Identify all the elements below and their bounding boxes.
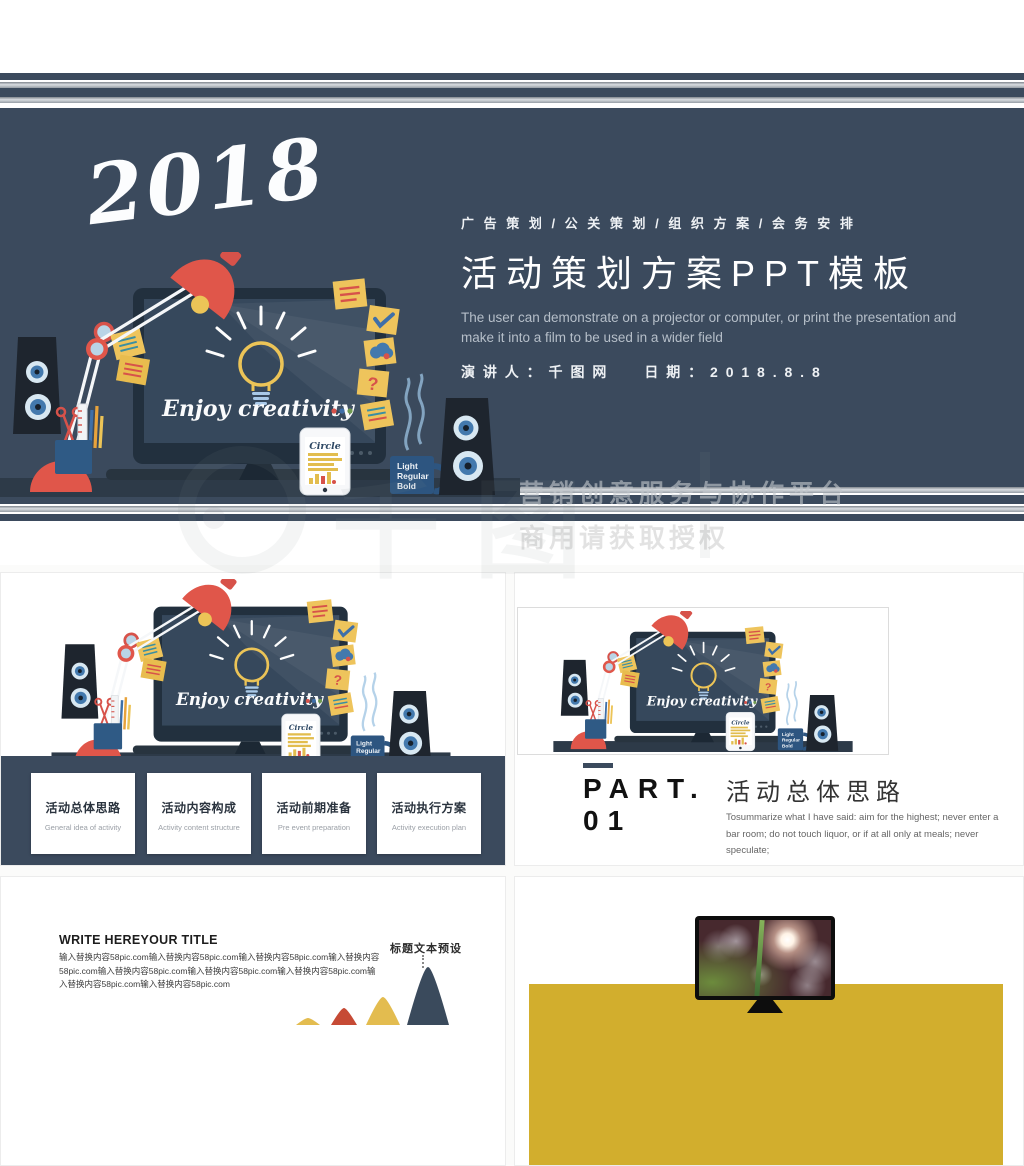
enjoy-creativity-text: Enjoy creativity xyxy=(161,396,356,422)
section-body: Tosummarize what I have said: aim for th… xyxy=(726,810,1008,860)
sticky-note-icon xyxy=(745,626,765,644)
sticky-note-icon xyxy=(360,400,394,431)
content-slide-thumbnail: WRITE HEREYOUR TITLE 输入替换内容58pic.com输入替换… xyxy=(0,876,506,1166)
sticky-note-icon xyxy=(333,278,368,309)
svg-text:Bold: Bold xyxy=(397,481,416,491)
svg-text:?: ? xyxy=(333,671,343,688)
card-title-zh: 活动内容构成 xyxy=(147,799,251,816)
enjoy-creativity-text: Enjoy creativity xyxy=(175,689,324,709)
sticky-note-question-icon: ? xyxy=(325,668,350,690)
card-title-en: Pre event preparation xyxy=(262,823,366,832)
part-number: 01 xyxy=(583,805,707,837)
sticky-note-cloud-icon xyxy=(364,337,397,366)
sticky-note-cloud-icon xyxy=(763,660,782,677)
agenda-illustration: Enjoy creativity ? xyxy=(51,579,451,767)
section-accent-bar xyxy=(583,763,613,768)
section-slide-thumbnail: Enjoy creativity ? xyxy=(514,572,1024,866)
cover-text-block: 广 告 策 划 / 公 关 策 划 / 组 织 方 案 / 会 务 安 排 活动… xyxy=(461,213,991,382)
mug-illustration: Light Regular Bold xyxy=(390,374,446,494)
enjoy-creativity-text: Enjoy creativity xyxy=(646,693,759,708)
card-title-zh: 活动总体思路 xyxy=(31,799,135,816)
sticky-note-check-icon xyxy=(366,305,399,335)
agenda-card: 活动执行方案 Activity execution plan xyxy=(377,773,481,854)
cover-subtitle: The user can demonstrate on a projector … xyxy=(461,308,969,347)
svg-text:Light: Light xyxy=(782,732,794,738)
tv-photo xyxy=(699,920,831,996)
phone-brand-text: Circle xyxy=(731,720,750,726)
cover-illustration: Enjoy creativity ? xyxy=(0,252,520,497)
svg-text:Bold: Bold xyxy=(782,743,793,749)
presenter-text: 演 讲 人 ： 千 图 网 xyxy=(461,362,608,382)
pencil-cup-illustration xyxy=(55,404,102,474)
section-heading: 活动总体思路 xyxy=(726,772,906,807)
section-illustration: Enjoy creativity ? xyxy=(543,611,863,752)
part-number-block: PART. 01 xyxy=(583,773,707,837)
phone-illustration: Circle xyxy=(300,428,350,495)
template-preview-page: { "colors":{ "navy":"#3b4a5d","navy-dark… xyxy=(0,0,1024,1024)
border-stripe xyxy=(0,97,1024,103)
part-label: PART. xyxy=(583,773,707,805)
speaker-right-icon xyxy=(806,695,838,751)
sticky-note-icon xyxy=(116,355,150,386)
mug-illustration: Light Regular Bold xyxy=(778,681,810,750)
agenda-slide-thumbnail: Enjoy creativity ? xyxy=(0,572,506,866)
category-line: 广 告 策 划 / 公 关 策 划 / 组 织 方 案 / 会 务 安 排 xyxy=(461,213,991,232)
sticky-note-check-icon xyxy=(333,620,359,643)
svg-text:Light: Light xyxy=(397,461,418,471)
cover-title: 活动策划方案PPT模板 xyxy=(461,245,991,297)
sticky-note-question-icon: ? xyxy=(357,369,390,398)
sticky-note-icon xyxy=(140,658,166,682)
card-title-en: Activity content structure xyxy=(147,823,251,832)
svg-text:?: ? xyxy=(366,373,379,394)
svg-text:Regular: Regular xyxy=(356,748,381,755)
content-title: WRITE HEREYOUR TITLE xyxy=(59,933,218,947)
date-text: 日 期 ： 2 0 1 8 . 8 . 8 xyxy=(644,362,821,382)
cover-slide: 2018 xyxy=(0,0,1024,565)
chart-callout-label: 标题文本预设 xyxy=(390,940,462,956)
agenda-card: 活动总体思路 General idea of activity xyxy=(31,773,135,854)
sticky-note-check-icon xyxy=(764,642,783,659)
border-stripe xyxy=(0,88,1024,97)
mug-illustration: Light Regular Bold xyxy=(351,673,394,765)
sticky-note-question-icon: ? xyxy=(759,678,778,695)
speaker-left-icon xyxy=(61,644,98,718)
sticky-note-icon xyxy=(328,692,354,716)
pencil-cup-illustration xyxy=(585,698,612,738)
tv-monitor xyxy=(695,916,835,1000)
agenda-card: 活动前期准备 Pre event preparation xyxy=(262,773,366,854)
card-title-en: General idea of activity xyxy=(31,823,135,832)
sticky-note-icon xyxy=(620,670,640,688)
svg-text:?: ? xyxy=(764,682,771,694)
sticky-note-icon xyxy=(761,696,781,714)
pencil-cup-illustration xyxy=(94,696,130,750)
desk-illustration: Enjoy creativity ? xyxy=(0,252,520,497)
phone-brand-text: Circle xyxy=(309,441,341,452)
card-title-en: Activity execution plan xyxy=(377,823,481,832)
speaker-left-icon xyxy=(13,337,61,434)
desk-illustration: Enjoy creativity ? xyxy=(543,611,863,752)
phone-illustration: Circle xyxy=(726,712,755,751)
media-slide-thumbnail xyxy=(514,876,1024,1166)
svg-text:Regular: Regular xyxy=(397,471,429,481)
speaker-right-icon xyxy=(388,691,431,765)
card-title-zh: 活动前期准备 xyxy=(262,799,366,816)
agenda-card: 活动内容构成 Activity content structure xyxy=(147,773,251,854)
sticky-note-icon xyxy=(307,599,334,623)
illustration-frame: Enjoy creativity ? xyxy=(517,607,889,755)
cone-chart-shapes xyxy=(289,961,459,1025)
phone-brand-text: Circle xyxy=(289,723,314,732)
svg-text:Light: Light xyxy=(356,741,373,748)
speaker-right-icon xyxy=(439,398,495,495)
card-title-zh: 活动执行方案 xyxy=(377,799,481,816)
sticky-note-cloud-icon xyxy=(330,644,355,667)
agenda-card-band: 活动总体思路 General idea of activity 活动内容构成 A… xyxy=(1,756,505,866)
border-stripe xyxy=(0,73,1024,80)
border-stripe xyxy=(0,506,1024,512)
speaker-left-icon xyxy=(561,660,589,716)
border-stripe xyxy=(0,514,1024,521)
svg-text:Regular: Regular xyxy=(782,738,800,744)
desk-illustration: Enjoy creativity ? xyxy=(51,579,451,767)
